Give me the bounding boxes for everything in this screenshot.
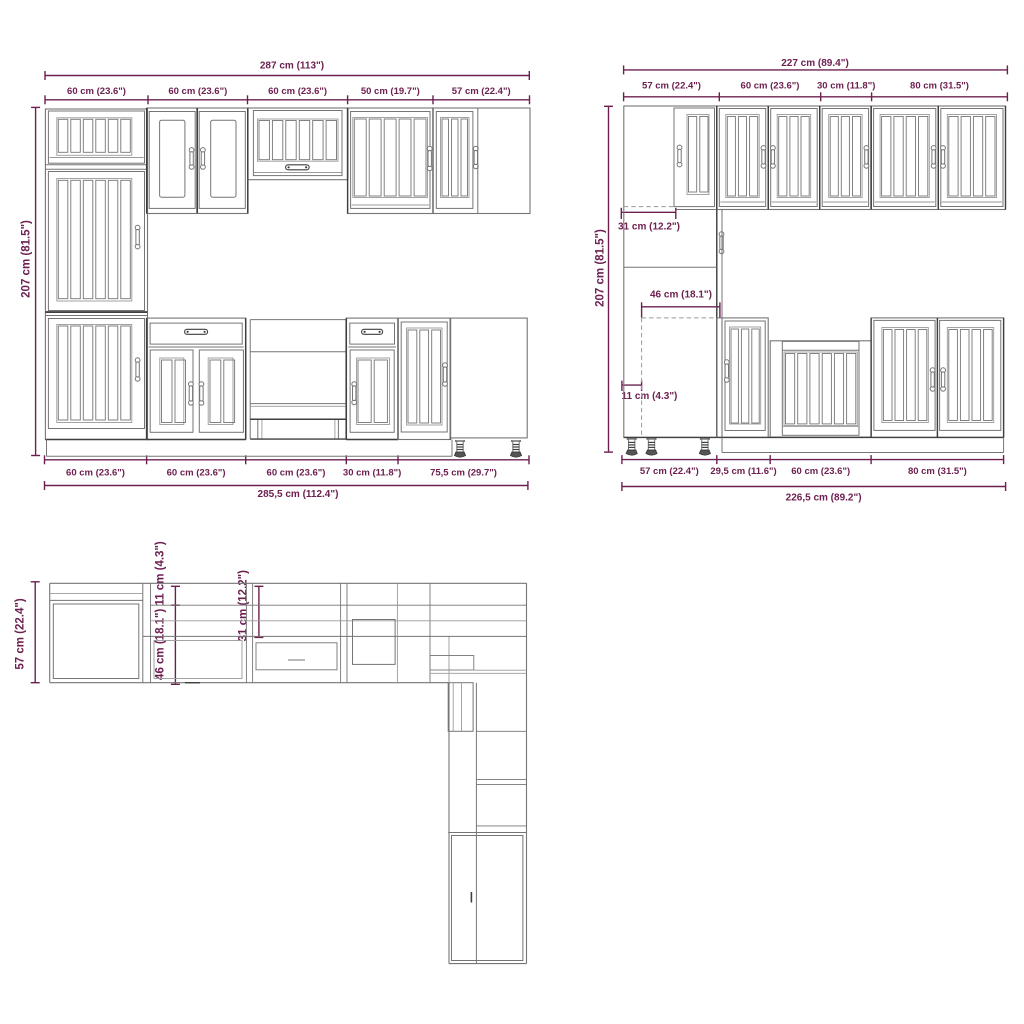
svg-text:60 cm (23.6"): 60 cm (23.6") — [167, 468, 226, 479]
svg-text:285,5 cm (112.4"): 285,5 cm (112.4") — [258, 489, 339, 500]
svg-text:11 cm (4.3"): 11 cm (4.3") — [154, 541, 166, 605]
svg-text:30 cm (11.8"): 30 cm (11.8") — [817, 81, 875, 92]
svg-text:75,5 cm (29.7"): 75,5 cm (29.7") — [430, 468, 497, 479]
svg-text:30 cm (11.8"): 30 cm (11.8") — [343, 468, 401, 479]
svg-text:60 cm (23.6"): 60 cm (23.6") — [67, 86, 126, 97]
svg-text:60 cm (23.6"): 60 cm (23.6") — [66, 468, 125, 479]
svg-text:57 cm (22.4"): 57 cm (22.4") — [642, 81, 701, 92]
svg-text:29,5 cm (11.6"): 29,5 cm (11.6") — [710, 466, 776, 477]
svg-text:226,5 cm (89.2"): 226,5 cm (89.2") — [786, 493, 862, 504]
svg-text:287 cm (113"): 287 cm (113") — [260, 61, 324, 72]
svg-text:60 cm (23.6"): 60 cm (23.6") — [268, 86, 327, 97]
svg-text:80 cm (31.5"): 80 cm (31.5") — [908, 466, 967, 477]
svg-text:227 cm (89.4"): 227 cm (89.4") — [781, 58, 849, 69]
svg-text:207 cm (81.5"): 207 cm (81.5") — [20, 220, 32, 298]
svg-text:60 cm (23.6"): 60 cm (23.6") — [267, 468, 326, 479]
svg-text:80 cm (31.5"): 80 cm (31.5") — [910, 81, 969, 92]
svg-text:60 cm (23.6"): 60 cm (23.6") — [168, 86, 227, 97]
svg-text:57 cm (22.4"): 57 cm (22.4") — [15, 598, 27, 669]
svg-text:57 cm (22.4"): 57 cm (22.4") — [452, 86, 511, 97]
svg-text:50 cm (19.7"): 50 cm (19.7") — [361, 86, 420, 97]
svg-text:11 cm (4.3"): 11 cm (4.3") — [622, 391, 678, 402]
svg-text:57 cm (22.4"): 57 cm (22.4") — [640, 466, 699, 477]
svg-text:31 cm (12.2"): 31 cm (12.2") — [618, 221, 680, 232]
svg-text:60 cm (23.6"): 60 cm (23.6") — [791, 466, 850, 477]
svg-text:46 cm (18.1"): 46 cm (18.1") — [650, 290, 712, 301]
svg-text:207 cm (81.5"): 207 cm (81.5") — [595, 229, 607, 307]
svg-text:46 cm (18.1"): 46 cm (18.1") — [155, 608, 167, 679]
svg-text:60 cm (23.6"): 60 cm (23.6") — [741, 81, 800, 92]
